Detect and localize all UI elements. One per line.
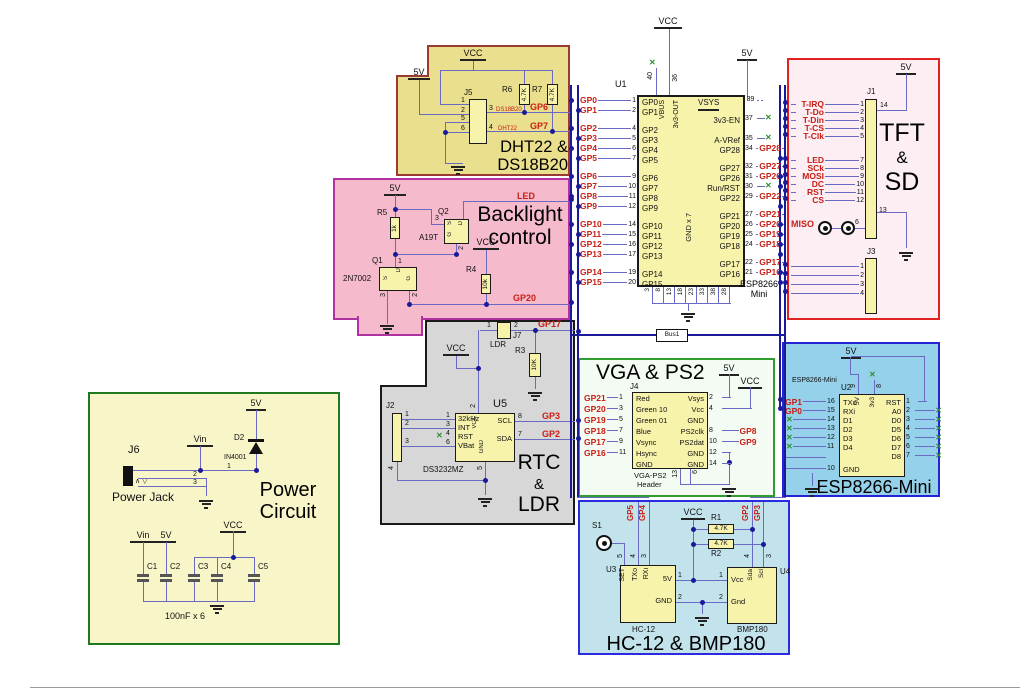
net-label: GP22	[758, 191, 782, 201]
pin-row: 29GP22	[744, 191, 784, 201]
pin-row	[698, 156, 740, 164]
shape	[478, 498, 492, 500]
pin-number: 1	[398, 258, 402, 265]
net-label: GP19	[583, 415, 607, 425]
pin-number: 7	[618, 427, 632, 434]
pin-number: 3	[859, 281, 865, 288]
spacer	[733, 397, 774, 398]
shape: 28	[721, 288, 728, 295]
wire	[535, 330, 536, 353]
shape	[528, 392, 542, 394]
pin-row: GND	[636, 459, 667, 470]
pin-row: ✕13	[784, 424, 839, 433]
vertical-label: GP4	[639, 505, 647, 521]
net-label: GP9	[579, 201, 598, 211]
junction-dot	[783, 132, 788, 137]
net-label: GP12	[579, 239, 603, 249]
pin-number: 27	[744, 211, 756, 218]
pin-row: 34GP28	[744, 143, 784, 153]
shape: GP27	[720, 164, 740, 173]
pad	[841, 221, 855, 235]
net-gp7: GP7	[530, 122, 548, 131]
ref-label: C1	[147, 563, 157, 571]
wire	[858, 374, 859, 394]
shape: GP13	[642, 252, 662, 261]
pin-row: GP811	[579, 191, 637, 201]
shape: TFT	[875, 120, 929, 147]
nc-mark: ✕	[649, 59, 656, 67]
shape	[248, 579, 260, 582]
shape	[902, 255, 911, 257]
region-rtc-ldr: 1 2 J7 LDR GP17 10K R3 VCC U5 2 VCC 32kH…	[380, 320, 575, 525]
shape: 18	[677, 288, 684, 295]
pin-number: 14	[708, 460, 722, 467]
wire	[194, 557, 195, 574]
pin-number: 14	[826, 416, 839, 423]
u2-right-pin-rows: 12✕3✕4✕5✕6✕7✕	[905, 397, 942, 460]
region-title-tft: TFT & SD	[875, 120, 929, 196]
wire	[552, 70, 553, 84]
wire	[603, 282, 627, 283]
pin-number: 31	[744, 173, 756, 180]
vertical-label: 6	[692, 470, 700, 474]
part-a19t: A19T	[419, 234, 438, 242]
vertical-label: Sda	[747, 569, 755, 581]
wire	[581, 215, 635, 216]
vertical-label: S	[382, 276, 390, 280]
pin-number: 14	[627, 221, 637, 228]
shape	[533, 399, 537, 401]
junction-dot	[783, 196, 788, 201]
nc-mark: ✕	[765, 182, 772, 190]
ref-label: C4	[221, 563, 231, 571]
resistor-r4: 10k	[481, 274, 491, 294]
pin-row: GP21	[698, 212, 740, 222]
pin-number: 3	[435, 215, 439, 222]
pin-row: GP11	[642, 232, 662, 242]
wire	[851, 356, 924, 357]
ref-d2: D2	[234, 434, 244, 442]
pin-row: 12	[708, 447, 774, 458]
net-gp20: GP20	[513, 294, 536, 303]
wire	[256, 410, 257, 440]
pin-row: RST	[879, 398, 901, 407]
shape: GP8	[642, 194, 658, 203]
wire	[581, 263, 635, 264]
wire	[603, 244, 627, 245]
wire	[166, 542, 167, 574]
pin-label: INT	[458, 424, 470, 432]
esp-small-label: ESP8266-Mini	[792, 377, 837, 385]
wire	[676, 580, 727, 581]
pin-row: Green 10	[636, 404, 667, 415]
wire	[803, 401, 826, 402]
pin-row: 35✕	[744, 133, 784, 143]
cap-c3	[188, 574, 200, 577]
pin-row: Run/RST	[698, 184, 740, 194]
junction-dot	[569, 270, 574, 275]
pin-number: 7	[905, 452, 915, 459]
pin-number: 37	[744, 115, 757, 122]
pin-row	[583, 458, 632, 469]
pin-row: GP1115	[579, 229, 637, 239]
junction-dot	[576, 232, 581, 237]
pin-row: 1	[791, 262, 865, 271]
pin-row: GP20	[698, 222, 740, 232]
pin-row: D1	[843, 416, 860, 425]
pin-row: A-VRef	[698, 136, 740, 146]
pin-row: RXi	[843, 407, 860, 416]
pin-number: 10	[627, 183, 637, 190]
shape: PS2dat	[679, 438, 704, 447]
shape: GP10	[642, 222, 662, 231]
net-label: GP6	[579, 171, 598, 181]
pin-number: 4	[905, 425, 915, 432]
spacer	[927, 401, 942, 402]
wire	[603, 254, 627, 255]
pin-row: GP69	[579, 171, 637, 181]
pin-row: 22GP17	[744, 257, 784, 267]
wire	[607, 441, 618, 442]
wire	[602, 234, 627, 235]
net-label: GP18	[583, 426, 607, 436]
junction-dot	[750, 527, 755, 532]
ref-j5: J5	[464, 89, 472, 97]
pin-row: GND	[664, 415, 704, 426]
shape: Mini	[735, 290, 783, 300]
wire	[478, 330, 479, 413]
nc-mark: ✕	[935, 407, 942, 415]
wire	[603, 224, 627, 225]
wire	[757, 186, 765, 187]
wire	[791, 148, 796, 149]
pin-number: 1	[678, 572, 682, 579]
vertical-label: 2	[470, 404, 478, 408]
ref-j1: J1	[867, 88, 875, 96]
wire	[924, 356, 925, 401]
pin-label: Gnd	[731, 598, 745, 606]
wire	[825, 192, 856, 193]
region-title-hc12: HC-12 & BMP180	[605, 634, 767, 656]
vertical-label: 3	[766, 554, 774, 558]
ref-s1: S1	[592, 522, 602, 530]
shape: GND	[636, 460, 653, 469]
wire	[535, 377, 536, 389]
junction-dot	[783, 188, 788, 193]
pin-row: 3✕	[905, 415, 942, 424]
pin-row: 3v3-EN	[698, 116, 740, 126]
connector-j3	[865, 258, 877, 314]
vga-ps2-header-j4: RedGreen 10Green 01BlueVsyncHsyncGND Vsy…	[632, 392, 708, 469]
shape: Green 10	[636, 405, 667, 414]
shape: Vsync	[636, 438, 656, 447]
wire	[524, 70, 525, 84]
junction-dot	[569, 98, 574, 103]
ref-j2: J2	[386, 402, 394, 410]
pin-label: SDA	[488, 435, 512, 443]
pin-row: GP9	[642, 204, 662, 214]
pin-row: Green 01	[636, 415, 667, 426]
pin-number: 12	[855, 197, 865, 204]
pin-number: 8	[708, 427, 722, 434]
vertical-label: 4.7K	[521, 88, 529, 101]
wire	[254, 582, 255, 601]
shape: GP22	[720, 194, 740, 203]
shape: D1	[843, 416, 853, 425]
pin-row: 7✕	[905, 451, 942, 460]
pin-number: 2	[631, 107, 637, 114]
pin-row: GP0	[642, 98, 662, 108]
pin-number: 5	[461, 115, 465, 122]
connector-j5	[469, 99, 487, 144]
wire	[598, 186, 627, 187]
resistor-r3: 10K	[529, 353, 541, 377]
pin-row: GP10	[642, 222, 662, 232]
junction-dot	[691, 542, 696, 547]
junction-dot	[393, 252, 398, 257]
pin-row: 39	[744, 95, 763, 105]
pin-row: GP28	[698, 146, 740, 156]
vertical-label: 3v3	[869, 397, 877, 407]
part-2n7002: 2N7002	[343, 275, 371, 283]
shape: GP5	[642, 156, 658, 165]
wire	[825, 184, 855, 185]
pin-row: D3	[843, 434, 860, 443]
pin-row: GP2	[642, 126, 662, 136]
ground-symbol	[527, 390, 543, 401]
vertical-label: 4	[630, 554, 638, 558]
wire	[757, 253, 770, 254]
net-label: GP27	[758, 161, 782, 171]
pin-row: GP13	[642, 252, 662, 262]
antenna-s1	[596, 535, 612, 551]
wire	[486, 250, 487, 274]
pin-row: PS2dat	[664, 437, 704, 448]
pin-row: 3	[791, 280, 865, 289]
shape	[199, 500, 213, 502]
shape	[685, 287, 686, 303]
shape: A0	[892, 407, 901, 416]
shape: 23	[688, 288, 695, 295]
shape: GP26	[720, 174, 740, 183]
shape	[686, 320, 690, 322]
junction-dot	[393, 207, 398, 212]
net-label: GP2	[579, 123, 598, 133]
pin-label: 5V	[648, 575, 672, 583]
nc-mark: ✕	[436, 432, 443, 440]
ground-symbol	[721, 486, 737, 497]
wire	[440, 104, 469, 105]
pin-row: D7	[879, 443, 901, 452]
resistor-r7: 4.7K	[547, 84, 558, 105]
pin-number: 3	[489, 105, 493, 112]
u2-left-pin-rows: GP116GP015✕14✕13✕12✕1110	[784, 397, 839, 473]
junction-dot	[783, 116, 788, 121]
pin-number: 1	[905, 398, 918, 405]
junction-dot	[254, 468, 259, 473]
pin-number: 1	[631, 97, 637, 104]
shape: A-VRef	[714, 136, 740, 145]
ground-symbol	[477, 496, 493, 507]
vertical-label: 4.7K	[549, 88, 557, 101]
schematic-canvas: 5V VCC 4.7K 4.7K R6 R7 J5 1 2 5 6 3 DS18…	[0, 0, 1024, 700]
wire	[757, 100, 759, 101]
junction-dot	[778, 232, 783, 237]
wire	[915, 446, 935, 447]
net-label: GP5	[579, 153, 598, 163]
vertical-label: 3v3-OUT	[673, 100, 681, 128]
wire	[850, 374, 858, 375]
shape: GP4	[642, 146, 658, 155]
wire	[793, 446, 826, 447]
shape	[160, 579, 172, 582]
pin-row: 4	[708, 403, 774, 414]
region-title-esp: ESP8266-Mini	[814, 478, 934, 497]
pin-label: VGA-PS2	[634, 472, 667, 480]
junction-dot	[576, 136, 581, 141]
bottom-pin: 28	[724, 287, 735, 303]
junction-dot	[783, 180, 788, 185]
shape: Red	[636, 394, 650, 403]
wire	[607, 408, 618, 409]
ref-r2: R2	[711, 550, 721, 558]
wire	[825, 128, 859, 129]
ref-r3: R3	[515, 347, 525, 355]
wire	[793, 437, 826, 438]
wire	[918, 401, 927, 402]
shape	[137, 579, 149, 582]
net-label: GP17	[758, 257, 782, 267]
pin-row: GP57	[579, 153, 637, 163]
junction-dot	[407, 302, 412, 307]
wire	[757, 128, 770, 129]
pin-label: Vcc	[731, 576, 744, 584]
wire	[772, 128, 785, 129]
shape: GP18	[720, 242, 740, 251]
junction-dot	[484, 302, 489, 307]
wire	[402, 419, 455, 420]
pin-number: 3	[405, 438, 409, 445]
pin-row	[708, 414, 774, 425]
shape	[204, 507, 208, 509]
wire	[552, 105, 553, 131]
ref-r1: R1	[711, 514, 721, 522]
pin-number: 6	[905, 443, 915, 450]
net-label: GP8	[739, 426, 758, 436]
pin-number: 25	[744, 231, 756, 238]
pin-row: VSYS	[698, 98, 719, 108]
junction-dot	[569, 197, 574, 202]
pin-number: 2	[678, 594, 682, 601]
wire	[825, 160, 859, 161]
shape	[684, 316, 693, 318]
shape	[210, 605, 224, 607]
pin-row: GP1611	[583, 447, 632, 458]
vertical-label: D	[395, 268, 403, 272]
connector-j2	[392, 413, 402, 462]
net-label: GP0	[784, 406, 803, 416]
pin-number: 7	[859, 157, 865, 164]
region-tft-sd: 5V 14 J1 T-IRQ1T-Do2T-Din3T-CS4T-Clk5LED…	[787, 58, 940, 320]
wire	[656, 68, 657, 95]
net-label: GP13	[579, 249, 603, 259]
wire	[138, 486, 206, 487]
shape: Blue	[636, 427, 651, 436]
wire	[791, 266, 859, 267]
wire	[649, 502, 650, 565]
vertical-label: 3	[641, 554, 649, 558]
pin-number: 5	[859, 133, 865, 140]
pin-row: 10	[784, 464, 839, 473]
resistor-r2: 4.7K	[708, 539, 734, 549]
net-label: GP21	[758, 209, 782, 219]
shape: Backlight	[469, 204, 571, 227]
pin-row	[843, 452, 860, 465]
part-ds18b20: DS18B20	[496, 106, 522, 115]
vertical-label: 40	[647, 72, 655, 80]
cap-c4	[211, 574, 223, 577]
wire	[445, 132, 469, 133]
wire	[915, 410, 935, 411]
ref-label: C5	[258, 563, 268, 571]
shape: GP19	[720, 232, 740, 241]
pin-number: 3	[193, 479, 197, 486]
pin-row	[642, 166, 662, 174]
pin-number: 12	[826, 434, 839, 441]
wire	[598, 128, 631, 129]
ground-symbol	[694, 615, 710, 626]
net-label: GP0	[579, 95, 598, 105]
vertical-label: Scl	[758, 569, 766, 578]
wire	[395, 209, 431, 210]
pin-row: GP5	[642, 156, 662, 166]
pin-number: 13	[826, 425, 839, 432]
wire	[217, 557, 218, 574]
pin-row: GP12	[642, 242, 662, 252]
pin-row	[579, 163, 637, 171]
pin-number: 24	[744, 241, 756, 248]
ref-j6: J6	[128, 446, 140, 454]
spacer	[733, 452, 774, 453]
shape	[695, 617, 709, 619]
wire	[791, 284, 859, 285]
wire	[772, 100, 785, 101]
wire	[456, 355, 457, 368]
wire	[757, 205, 770, 206]
shape: GP2	[642, 126, 658, 135]
nc-mark: ✕	[786, 416, 793, 424]
wire	[722, 430, 739, 431]
pin-row: 32GP27	[744, 161, 784, 171]
ref-r4: R4	[466, 266, 476, 274]
shape	[700, 624, 704, 626]
wire	[722, 463, 731, 464]
pin-number: 3	[905, 416, 915, 423]
shape: LDR	[510, 494, 568, 517]
wire	[825, 112, 859, 113]
pin-row: D4	[843, 443, 860, 452]
junction-dot	[483, 478, 488, 483]
pin-label: SCL	[488, 417, 512, 425]
junction-dot	[454, 252, 459, 257]
power-jack-symbol	[123, 466, 133, 486]
net-label: GP28	[758, 143, 782, 153]
pin-row: Vsync	[636, 437, 667, 448]
wire	[515, 421, 575, 422]
pin-number: 12	[627, 203, 637, 210]
shape: DS18B20	[460, 157, 568, 175]
pin-number: 12	[708, 449, 722, 456]
